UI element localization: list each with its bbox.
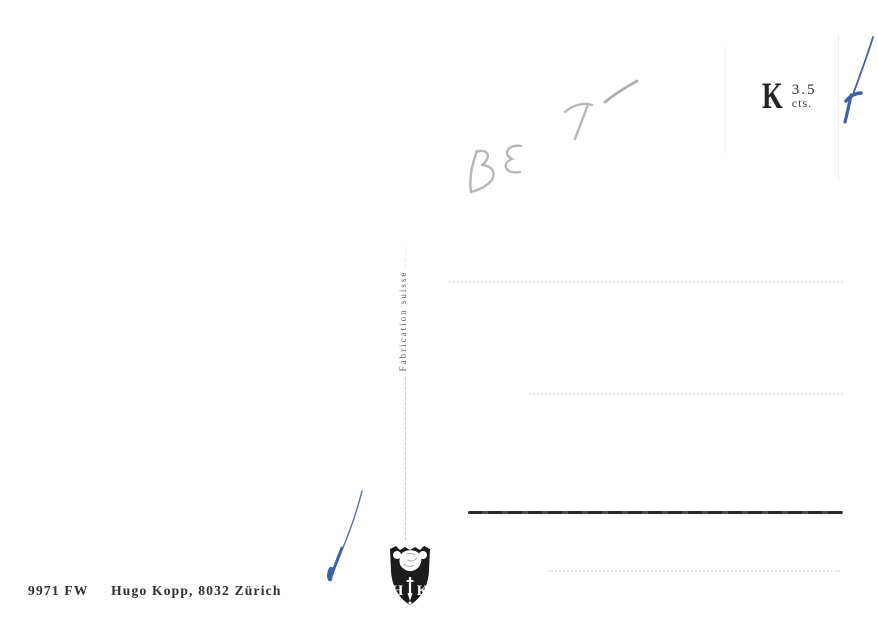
address-line-4 xyxy=(548,570,840,572)
stamp-currency-letter: K xyxy=(762,82,782,112)
divider-line-lower xyxy=(405,377,406,540)
stamp-box-left-edge xyxy=(725,45,726,155)
postcard-back: K 3.5 cts. Fabrication suisse xyxy=(0,0,878,632)
stamp-unit: cts. xyxy=(792,97,817,110)
imprint-publisher: Hugo Kopp, 8032 Zürich xyxy=(111,583,281,598)
pen-stroke-top-right-icon xyxy=(845,37,873,122)
stamp-box-right-edge xyxy=(838,35,839,180)
stamp-price: 3.5 cts. xyxy=(792,83,817,110)
address-line-3-dark xyxy=(468,511,843,514)
publisher-shield-logo-icon: H K xyxy=(384,544,436,608)
pencil-note xyxy=(470,81,637,192)
pen-stroke-bottom-left-icon xyxy=(329,491,362,579)
imprint-line: 9971 FW Hugo Kopp, 8032 Zürich xyxy=(28,583,282,599)
stamp-amount: 3.5 xyxy=(792,83,817,97)
address-line-2 xyxy=(530,393,843,395)
divider-line-upper xyxy=(405,247,406,267)
logo-initial-k: K xyxy=(417,583,429,599)
divider-label: Fabrication suisse xyxy=(398,266,412,376)
stamp-value: K 3.5 cts. xyxy=(762,82,817,112)
handwriting-overlay xyxy=(0,0,878,632)
imprint-catalog-code: 9971 FW xyxy=(28,583,89,598)
logo-initial-h: H xyxy=(392,583,404,599)
address-line-1 xyxy=(448,281,843,283)
